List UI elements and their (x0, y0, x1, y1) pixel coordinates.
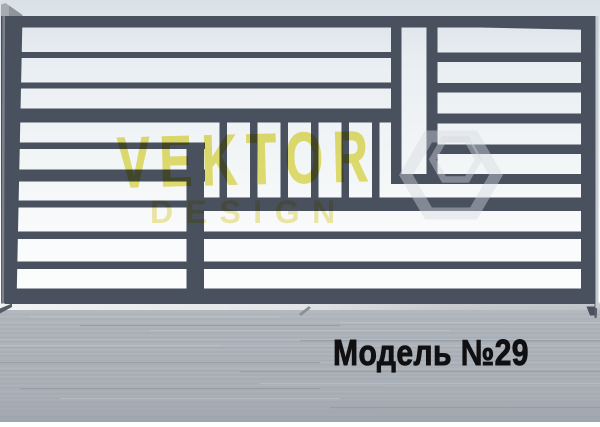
svg-text:Модель №29: Модель №29 (333, 334, 529, 374)
svg-text:DESIGN: DESIGN (150, 194, 348, 230)
svg-text:VEKTOR: VEKTOR (116, 116, 378, 203)
